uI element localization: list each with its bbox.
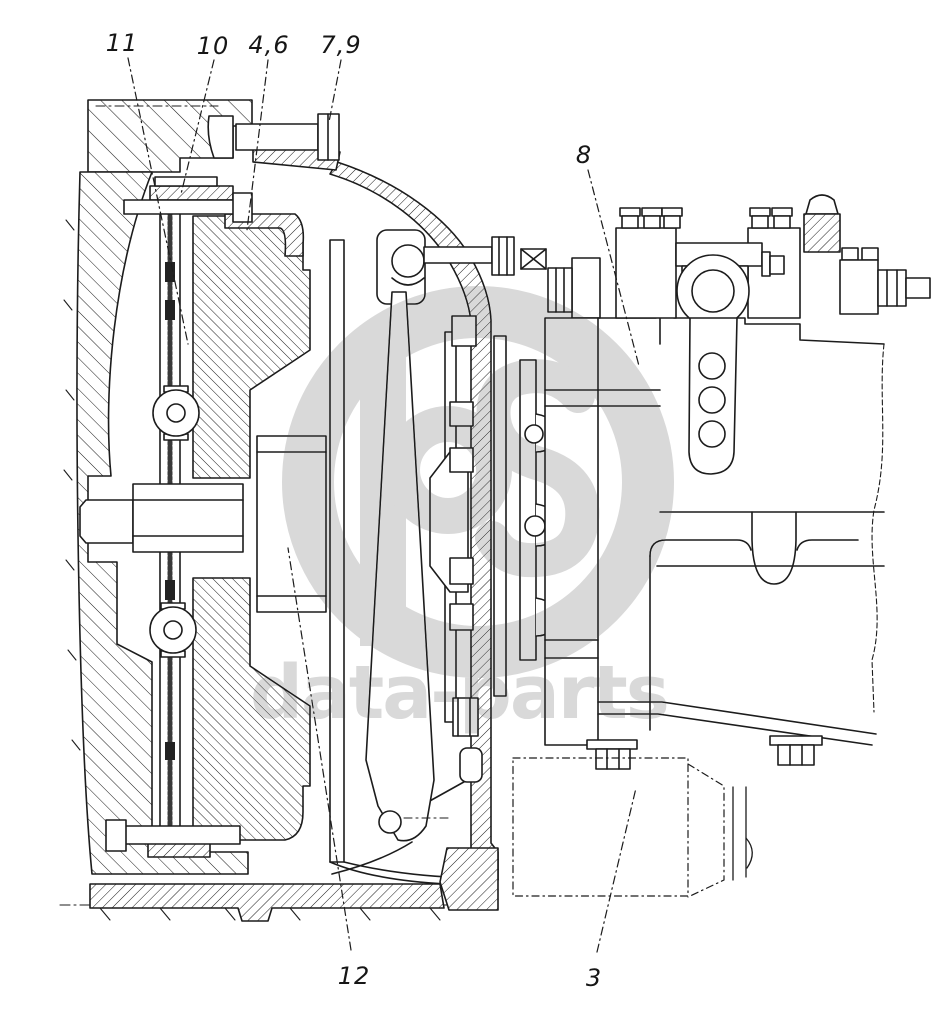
crankshaft-end xyxy=(80,500,133,543)
part-label-11-text: 11 xyxy=(106,29,139,57)
part-label-12: 12 xyxy=(338,962,371,990)
part-label-8-text: 8 xyxy=(576,141,592,169)
leader-line-7-9 xyxy=(329,60,341,122)
side-fitting xyxy=(840,248,930,314)
technical-drawing xyxy=(0,0,936,1025)
part-label-10-text: 10 xyxy=(197,32,230,60)
part-label-4-6: 4,6 xyxy=(248,31,289,59)
diagram-canvas: data-parts 11 10 4,6 7,9 8 12 3 xyxy=(0,0,936,1025)
release-sleeve-block xyxy=(257,436,326,612)
damper-spring-lower xyxy=(150,603,196,657)
part-label-7-9: 7,9 xyxy=(320,31,361,59)
dashed-part-shaft xyxy=(733,787,752,880)
leader-line-3 xyxy=(597,788,636,952)
part-label-3-text: 3 xyxy=(586,964,602,992)
dashed-outline-part xyxy=(513,758,724,897)
part-label-3: 3 xyxy=(586,964,602,992)
breather-icon xyxy=(804,195,840,252)
pressure-plate-stack xyxy=(430,332,558,722)
part-label-12-text: 12 xyxy=(338,962,371,990)
gearbox-bottom-bolts xyxy=(587,736,822,769)
part-label-7-9-text: 7,9 xyxy=(320,31,361,59)
hub-block xyxy=(133,484,243,552)
part-label-11: 11 xyxy=(106,29,139,57)
part-label-4-6-text: 4,6 xyxy=(248,31,289,59)
part-label-10: 10 xyxy=(197,32,230,60)
part-label-8: 8 xyxy=(576,141,592,169)
